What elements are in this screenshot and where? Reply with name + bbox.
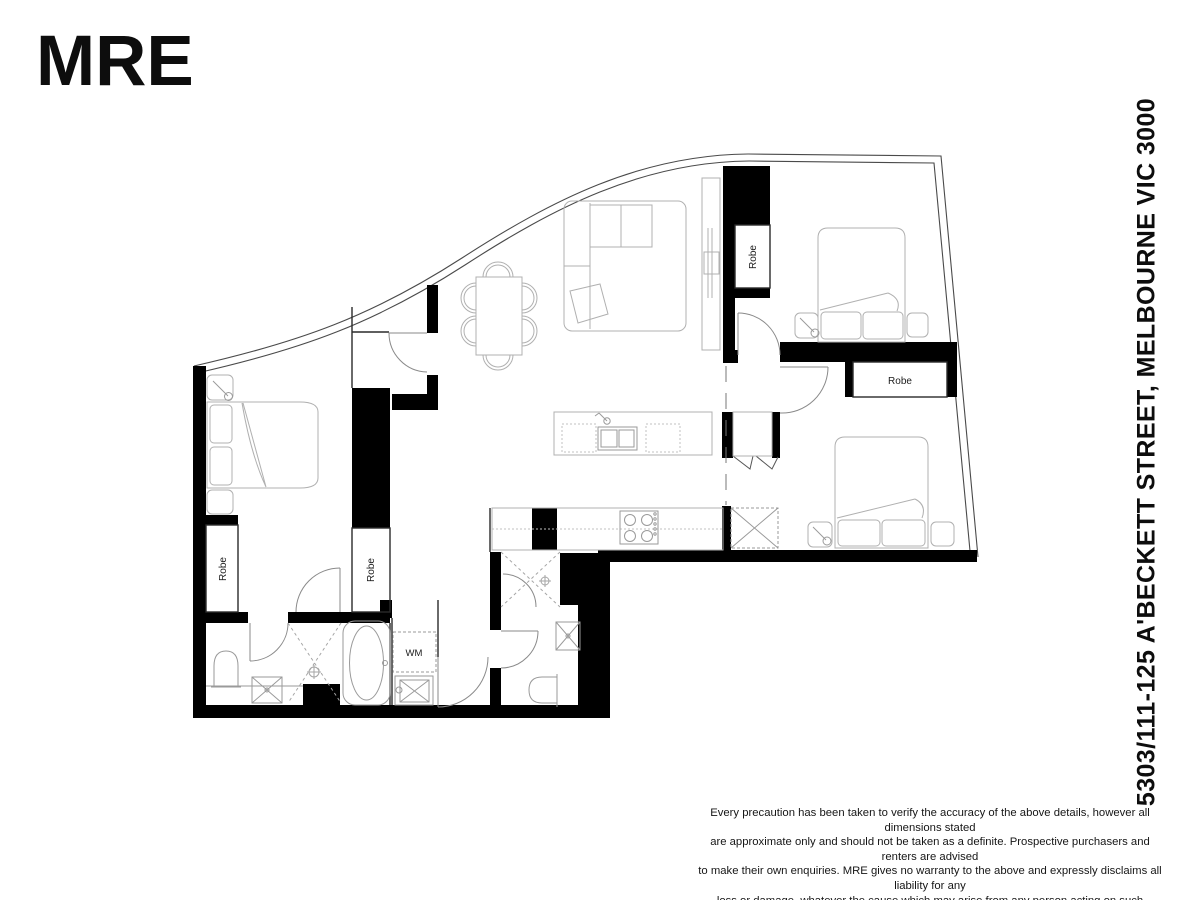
tv-unit [702,178,720,350]
dining-table [461,262,537,370]
bedroom1-left-bed [207,375,318,514]
disclaimer-line: loss or damage, whatever the cause which… [694,894,1166,900]
pillow [210,405,232,443]
table-lamp [813,527,831,545]
wall-top-divider [723,166,735,363]
wall-bottom-right-band [598,550,977,562]
bathroom1-door [250,623,288,661]
kitchen-counter [492,508,723,550]
wall-closet1-right [772,412,780,458]
toilet [529,674,557,707]
laundry-tub [395,676,433,705]
bedside-table [931,522,954,546]
vanity-basin [252,677,282,703]
disclaimer: Every precaution has been taken to verif… [694,806,1166,900]
cooktop [620,511,658,544]
blanket-fold [837,499,923,518]
wall-robe-top-cap [733,288,770,298]
wall-bed1r-south [780,342,957,362]
wall-robe-right-cap-l [845,362,853,397]
thin-walls [206,225,947,705]
robe-label-right: Robe [888,376,912,387]
blanket-fold [820,293,898,311]
closet1-bifold-doors [733,456,778,469]
bedroom1-left-door [296,568,340,612]
bedroom2-bed [808,437,954,548]
floor-plan-drawing: Robe Robe Robe Robe WM [0,0,1200,900]
bathroom2-door [501,631,538,668]
pillow [838,520,880,546]
disclaimer-line: Every precaution has been taken to verif… [694,806,1166,835]
bedroom1-right-door [738,313,780,355]
wall-bed1l-east [352,388,390,528]
furniture [207,178,954,550]
wall-robe-left-cap [205,515,238,525]
bedroom1-right-bed [795,228,928,342]
bathtub [343,621,390,705]
disclaimer-line: to make their own enquiries. MRE gives n… [694,864,1166,893]
wall-bottom-left [193,705,610,718]
table-lamp [213,381,233,401]
entry-door [389,333,427,372]
pantry-cupboard [731,508,778,548]
kitchen-sink [595,413,637,450]
bedside-table [795,313,818,338]
shower [501,552,560,607]
pillow [210,447,232,485]
dining-chair-top [483,262,513,277]
hall-closet [733,412,772,456]
wall-bath1-stub [303,684,340,706]
wall-bath1-band-a [205,612,248,623]
sofa [564,201,686,331]
wall-bath2-right [578,605,610,718]
wall-hall-top [392,394,438,410]
bedroom2-door [780,367,828,413]
robe-label-top: Robe [748,245,759,269]
kitchen-island [554,412,712,455]
laundry-door [438,657,488,707]
dining-chair-right-1 [522,283,537,313]
wall-bath2-left-a [490,552,501,630]
disclaimer-line: are approximate only and should not be t… [694,835,1166,864]
wall-left-outer [193,366,206,718]
pillow [821,312,861,339]
pillow [882,520,925,546]
bedside-table [207,490,233,514]
robe-label-left-outer: Robe [218,557,229,581]
wall-bath2-left-b [490,668,501,708]
pillow [863,312,903,339]
dining-chair-right-2 [522,316,537,346]
bathroom1-fixtures [206,621,390,705]
laundry-fixtures [393,632,436,705]
wall-divider-stub [723,350,738,363]
robe-label-left-inner: Robe [366,558,377,582]
solid-walls [193,166,977,718]
blanket-fold [242,403,266,487]
dining-chair-bottom [483,355,513,370]
dining-chair-left-2 [461,316,476,346]
vanity-basin [556,622,580,650]
toilet [211,651,241,687]
shower-screen [503,574,536,607]
wall-robe-right-cap-r [947,362,957,397]
wall-closet1-left [722,412,733,458]
floor-plan-page: MRE 5303/111-125 A'BECKETT STREET, MELBO… [0,0,1200,900]
bedside-table [907,313,928,337]
table-lamp [800,318,819,337]
dining-chair-left-1 [461,283,476,313]
wall-entry-stub-top [427,285,438,333]
wm-label: WM [406,648,423,659]
